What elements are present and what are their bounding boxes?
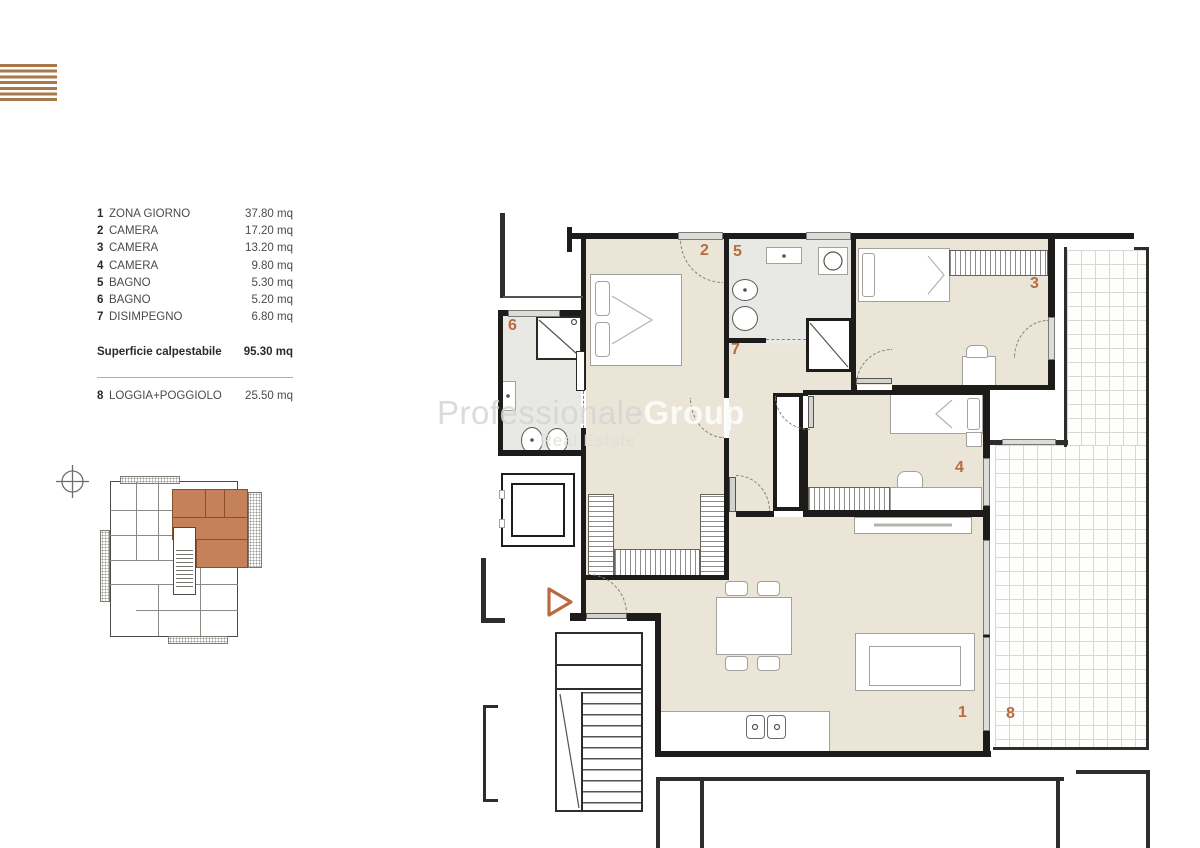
duvet-fold (928, 256, 944, 294)
washing-machine-drum-icon (824, 252, 842, 270)
plan-detail-lines (0, 0, 1200, 848)
entrance-arrow-icon (549, 589, 571, 615)
sink-drain-icon (775, 725, 780, 730)
basin-tap-icon (782, 254, 786, 258)
stair-cut-line (560, 694, 579, 808)
shower-head-icon (572, 320, 577, 325)
bidet-tap-icon (530, 438, 534, 442)
bidet-tap-icon (743, 288, 747, 292)
room-number-7: 7 (731, 342, 740, 358)
room-number-5: 5 (733, 244, 742, 260)
room-number-6: 6 (508, 318, 517, 334)
room-number-4: 4 (955, 460, 964, 476)
shower-diagonal (539, 320, 577, 354)
room-number-2: 2 (700, 243, 709, 259)
room-number-1: 1 (958, 705, 967, 721)
duvet-fold (936, 400, 952, 428)
room-number-8: 8 (1006, 706, 1015, 722)
duvet-fold (612, 296, 652, 344)
room-number-3: 3 (1030, 276, 1039, 292)
shower-diagonal (810, 323, 848, 367)
floorplan-page: 1 ZONA GIORNO 37.80 mq 2 CAMERA 17.20 mq… (0, 0, 1200, 848)
basin-tap-icon (506, 394, 510, 398)
sink-drain-icon (753, 725, 758, 730)
compass-icon (56, 465, 89, 498)
